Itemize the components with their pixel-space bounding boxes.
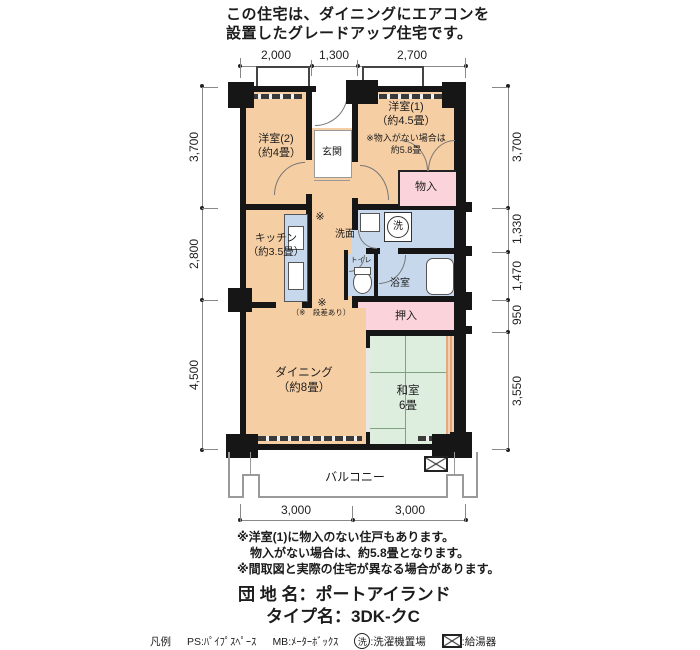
window-sill	[368, 94, 446, 99]
dim-bottom-1: 3,000	[266, 503, 326, 517]
legend-ps: PS:ﾊﾟｲﾌﾟｽﾍﾟｰｽ	[187, 634, 256, 649]
dim-right-5: 3,550	[510, 356, 526, 426]
estate-name-value: ポートアイランド	[315, 585, 450, 604]
tatami-line	[370, 428, 405, 429]
pillar	[228, 82, 254, 108]
dining-name: ダイニング	[275, 367, 333, 379]
door-opening	[306, 160, 312, 194]
genkan-label: 玄関	[314, 146, 350, 159]
washitsu-name: 和室	[397, 385, 420, 397]
dim-tick	[492, 332, 508, 333]
legend-heater-icon	[442, 634, 462, 648]
dim-tick	[311, 60, 312, 76]
kitchen-label: キッチン （約3.5畳）	[244, 232, 308, 259]
kitchen-size: （約3.5畳）	[248, 246, 305, 258]
washbasin	[360, 213, 380, 232]
door-opening	[352, 162, 358, 198]
estate-name-row: 団 地 名：ポートアイランド	[238, 584, 451, 606]
legend-bar: 凡例 PS:ﾊﾟｲﾌﾟｽﾍﾟｰｽ MB:ﾒｰﾀｰﾎﾞｯｸｽ 洗:洗濯機置場 :給…	[150, 633, 580, 649]
dim-tick	[465, 58, 466, 78]
pillar	[228, 288, 252, 312]
dim-tick	[492, 87, 508, 88]
yoshitsu1-name: 洋室(1)	[388, 101, 423, 113]
toilet-label: トイレ	[347, 256, 375, 265]
door-opening	[380, 248, 398, 254]
yoshitsu2-name: 洋室(2)	[258, 133, 293, 145]
yoshitsu1-label: 洋室(1) （約4.5畳）	[358, 100, 454, 129]
kitchen-name: キッチン	[255, 232, 297, 244]
dim-tick	[202, 449, 218, 450]
header-note-line2: 設置したグレードアップ住宅です。	[226, 24, 473, 44]
yoshitsu1-size: （約4.5畳）	[376, 115, 435, 127]
legend-washer-text: :洗濯機置場	[370, 634, 425, 649]
dining-size: （約8畳）	[278, 382, 330, 394]
washitsu-label: 和室 6畳	[384, 384, 432, 414]
dim-left-1: 3,700	[187, 112, 203, 182]
entrance-opening	[316, 86, 346, 92]
washitsu-size: 6畳	[399, 400, 417, 412]
pillar	[456, 292, 472, 310]
pillar	[460, 246, 472, 256]
type-name-row: タイプ名：3DK-クC	[266, 606, 420, 628]
legend-washer-icon: 洗	[354, 633, 370, 649]
header-note-line1: この住宅は、ダイニングにエアコンを	[226, 5, 490, 25]
window-sill	[250, 94, 302, 99]
dim-left-3: 4,500	[187, 340, 203, 410]
oshiire-label: 押入	[358, 309, 454, 323]
balcony-divider	[250, 452, 251, 474]
dim-tick	[492, 449, 508, 450]
dim-top-2: 1,300	[304, 48, 364, 62]
dining-label: ダイニング （約8畳）	[248, 366, 360, 396]
legend-mb: MB:ﾒｰﾀｰﾎﾞｯｸｽ	[272, 634, 338, 649]
dim-tick	[492, 252, 508, 253]
sliding-door	[366, 348, 370, 432]
floorplan-page: この住宅は、ダイニングにエアコンを 設置したグレードアップ住宅です。 2,000…	[0, 0, 700, 650]
balcony-step-right	[446, 474, 464, 498]
dim-tick	[240, 504, 241, 522]
note-line1: ※洋室(1)に物入のない住戸もあります。	[237, 530, 454, 546]
window-sill	[258, 436, 362, 441]
dim-tick	[492, 208, 508, 209]
dim-tick	[465, 504, 466, 522]
dim-tick	[357, 60, 358, 76]
legend-heading: 凡例	[150, 634, 171, 649]
yoshitsu2-label: 洋室(2) （約4畳）	[246, 132, 306, 161]
washitsu-wood-strip	[446, 336, 454, 444]
dim-right-4: 950	[510, 280, 526, 350]
dim-tick	[240, 58, 241, 78]
yoshitsu1-note2: 約5.8畳	[391, 145, 422, 155]
dim-tick	[202, 87, 218, 88]
type-name-value: 3DK-クC	[351, 607, 420, 626]
dim-bottom-2: 3,000	[380, 503, 440, 517]
genkan-step-line	[314, 180, 350, 181]
balcony-divider	[454, 452, 455, 474]
dim-tick	[202, 208, 218, 209]
legend-washer-item: 洗:洗濯機置場	[354, 633, 425, 649]
balcony-step-left	[242, 474, 260, 498]
kitchen-stove	[288, 262, 304, 290]
type-name-label: タイプ名：	[266, 607, 351, 626]
tatami-line	[405, 336, 406, 372]
yoshitsu1-note1: ※物入がない場合は	[366, 133, 446, 143]
step-note: （※ 段差あり）	[276, 308, 366, 318]
note-line2: 物入がない場合は、約5.8畳となります。	[250, 546, 469, 562]
toilet-tank	[354, 267, 371, 275]
bath-label: 浴室	[380, 277, 420, 290]
toilet-bowl	[353, 272, 372, 294]
legend-heater-item: :給湯器	[442, 634, 496, 649]
pillar	[460, 326, 472, 334]
tatami-line	[370, 372, 446, 373]
dim-top-1: 2,000	[246, 48, 306, 62]
dim-tick	[492, 300, 508, 301]
yoshitsu1-note: ※物入がない場合は 約5.8畳	[354, 132, 458, 156]
door-opening	[352, 248, 366, 254]
asterisk-mark: ※	[312, 210, 328, 224]
note-line3: ※間取図と実際の住宅が異なる場合があります。	[237, 562, 499, 578]
monoire-label: 物入	[398, 180, 454, 194]
balcony-label: バルコニー	[300, 470, 410, 486]
dim-left-2: 2,800	[187, 219, 203, 289]
estate-name-label: 団 地 名：	[238, 585, 315, 604]
senmen-label: 洗面	[328, 228, 362, 241]
legend-heater-text: :給湯器	[462, 634, 496, 649]
bathtub	[426, 258, 454, 295]
dim-tick	[202, 300, 218, 301]
dim-tick	[352, 506, 353, 522]
water-heater-icon	[424, 456, 448, 472]
dim-right-1: 3,700	[510, 112, 526, 182]
pillar	[460, 202, 472, 212]
yoshitsu2-size: （約4畳）	[251, 147, 301, 159]
dim-line-right	[508, 86, 509, 450]
washer-symbol: 洗	[387, 216, 409, 238]
dim-top-3: 2,700	[382, 48, 442, 62]
